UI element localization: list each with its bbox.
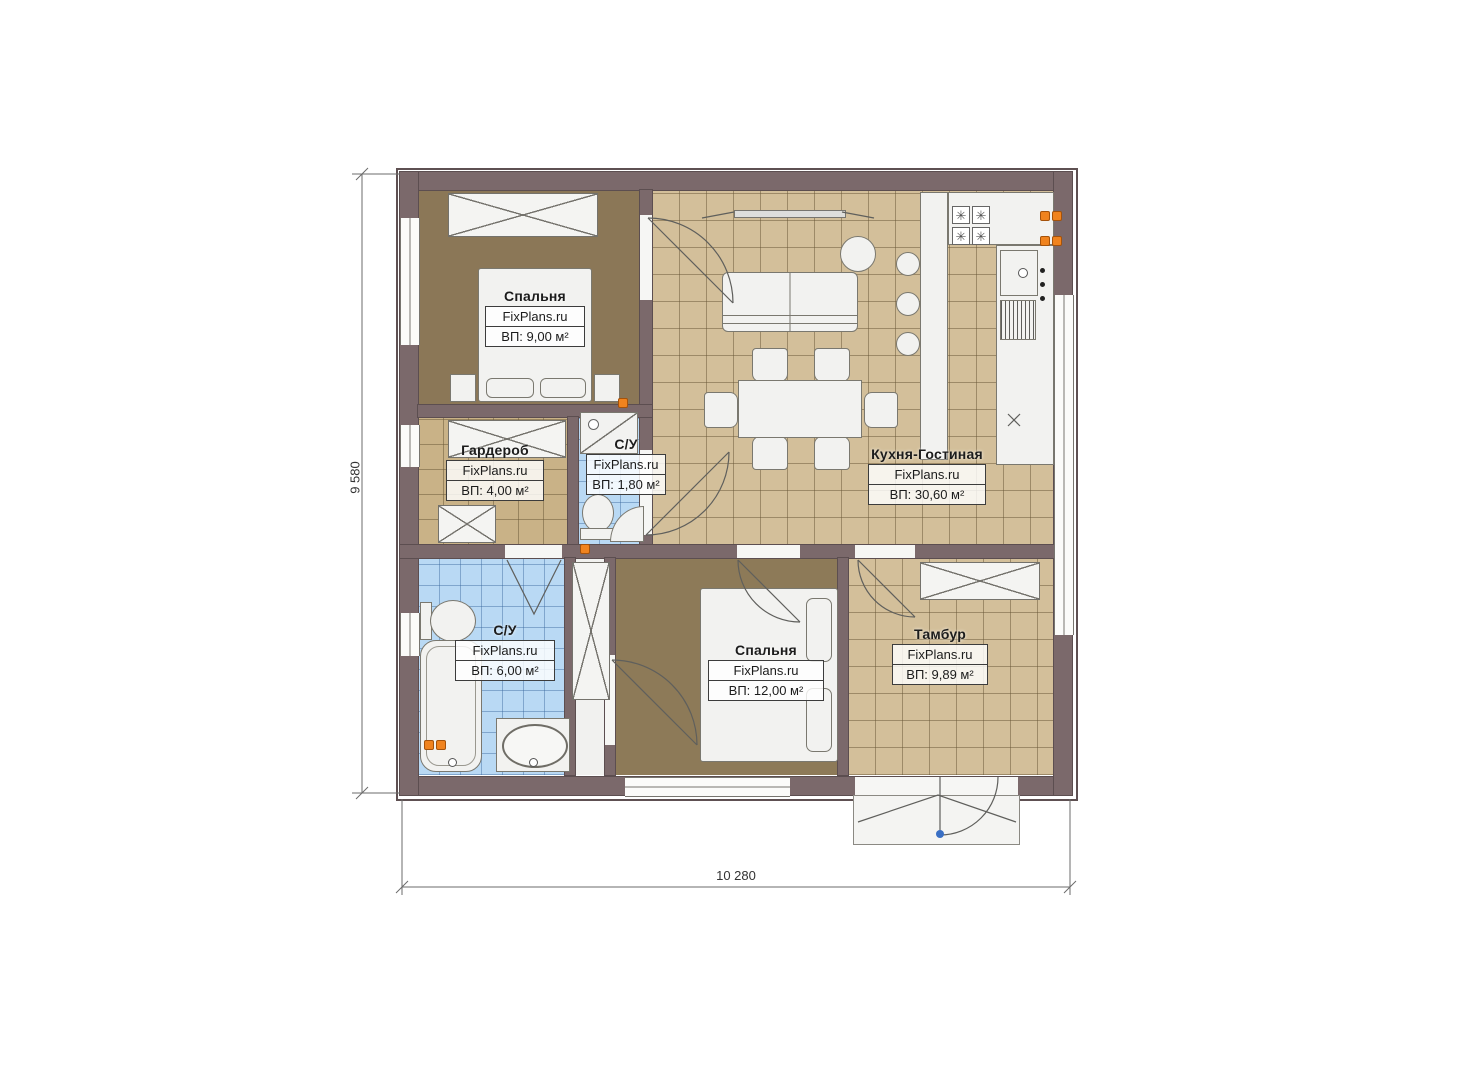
watermark: FixPlans.ru [892, 644, 988, 665]
room-name: Спальня [485, 288, 585, 304]
power-socket-icon [424, 740, 446, 750]
dimension-lines [352, 168, 1076, 895]
room-area: ВП: 9,00 м² [485, 327, 585, 347]
door-swing-bedroom-bottom [738, 560, 800, 622]
door-swing-bedroom-top [648, 218, 733, 303]
room-area: ВП: 4,00 м² [446, 481, 544, 501]
room-label-bedroom-top: Спальня FixPlans.ru ВП: 9,00 м² [485, 288, 585, 347]
door-swing-vestibule [858, 560, 915, 617]
power-socket-icon [580, 544, 590, 554]
room-label-wardrobe: Гардероб FixPlans.ru ВП: 4,00 м² [446, 442, 544, 501]
room-label-kitchen-living: Кухня-Гостиная FixPlans.ru ВП: 30,60 м² [868, 446, 986, 505]
tv-mount-lines [702, 212, 874, 218]
room-area: ВП: 12,00 м² [708, 681, 824, 701]
room-area: ВП: 9,89 м² [892, 665, 988, 685]
room-name: С/У [455, 622, 555, 638]
room-area: ВП: 6,00 м² [455, 661, 555, 681]
room-name: Гардероб [446, 442, 544, 458]
annotation-overlay [0, 0, 1474, 1080]
room-name: Спальня [708, 642, 824, 658]
watermark: FixPlans.ru [455, 640, 555, 661]
room-area: ВП: 1,80 м² [586, 475, 666, 495]
room-name: С/У [586, 436, 666, 452]
room-label-bathroom-small: С/У FixPlans.ru ВП: 1,80 м² [586, 436, 666, 495]
power-socket-icon [618, 398, 628, 408]
watermark: FixPlans.ru [586, 454, 666, 475]
watermark: FixPlans.ru [485, 306, 585, 327]
watermark: FixPlans.ru [446, 460, 544, 481]
room-area: ВП: 30,60 м² [868, 485, 986, 505]
room-label-vestibule: Тамбур FixPlans.ru ВП: 9,89 м² [892, 626, 988, 685]
door-swing-closet [612, 660, 697, 745]
watermark: FixPlans.ru [868, 464, 986, 485]
room-label-bathroom-large: С/У FixPlans.ru ВП: 6,00 м² [455, 622, 555, 681]
floor-plan-canvas: ✳ ✳ ✳ ✳ [0, 0, 1474, 1080]
porch-step-lines [858, 795, 1016, 822]
room-name: Тамбур [892, 626, 988, 642]
watermark: FixPlans.ru [708, 660, 824, 681]
room-label-bedroom-bottom: Спальня FixPlans.ru ВП: 12,00 м² [708, 642, 824, 701]
power-socket-icon [1040, 236, 1062, 246]
room-name: Кухня-Гостиная [868, 446, 986, 462]
door-swing-bathroom-large [507, 560, 561, 614]
power-socket-icon [1040, 211, 1062, 221]
door-handle-dot [936, 830, 944, 838]
counter-x-mark [1008, 414, 1020, 426]
